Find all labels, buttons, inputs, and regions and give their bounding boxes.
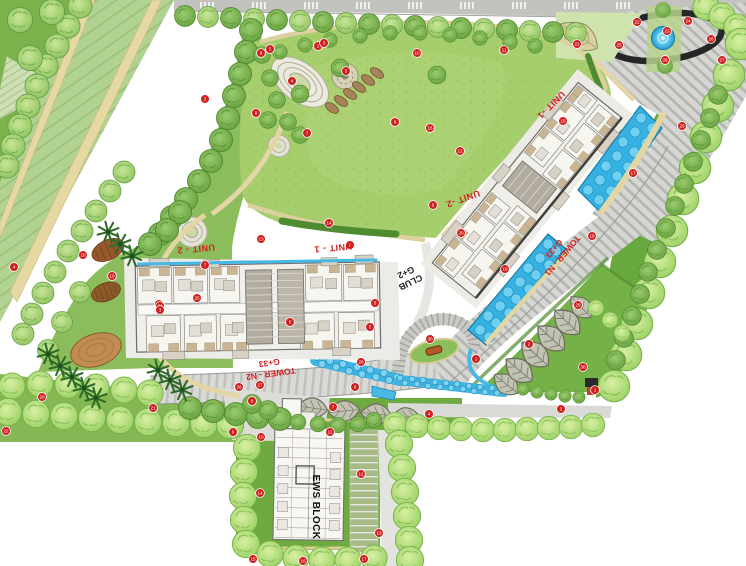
svg-text:28: 28 [358, 360, 364, 365]
svg-text:15: 15 [560, 119, 566, 124]
svg-text:15: 15 [250, 557, 256, 562]
svg-text:3: 3 [560, 407, 563, 412]
svg-text:19: 19 [109, 274, 115, 279]
svg-text:1: 1 [594, 388, 597, 393]
svg-text:4: 4 [13, 265, 16, 270]
svg-text:22: 22 [3, 429, 9, 434]
svg-text:2: 2 [528, 342, 531, 347]
svg-text:20: 20 [458, 231, 464, 236]
svg-text:4: 4 [428, 412, 431, 417]
svg-text:18: 18 [80, 253, 86, 258]
svg-text:12: 12 [457, 149, 463, 154]
svg-text:30: 30 [427, 337, 433, 342]
svg-text:9: 9 [432, 203, 435, 208]
svg-text:5: 5 [374, 301, 377, 306]
svg-text:17: 17 [361, 557, 367, 562]
svg-text:27: 27 [719, 58, 725, 63]
svg-text:23: 23 [664, 29, 670, 34]
svg-text:26: 26 [236, 385, 242, 390]
svg-text:6: 6 [394, 120, 397, 125]
svg-text:16: 16 [427, 126, 433, 131]
svg-text:21: 21 [574, 42, 580, 47]
svg-text:2: 2 [269, 47, 272, 52]
svg-text:21: 21 [150, 406, 156, 411]
svg-text:7: 7 [332, 405, 335, 410]
svg-text:2: 2 [204, 97, 207, 102]
svg-text:8: 8 [251, 399, 254, 404]
svg-text:29: 29 [575, 303, 581, 308]
svg-text:3: 3 [159, 308, 162, 313]
svg-text:13: 13 [258, 237, 264, 242]
svg-text:1: 1 [317, 44, 320, 49]
svg-text:9: 9 [232, 430, 235, 435]
svg-text:14: 14 [326, 221, 332, 226]
svg-text:19: 19 [502, 267, 508, 272]
svg-text:7: 7 [204, 263, 207, 268]
svg-text:4: 4 [291, 79, 294, 84]
svg-text:16: 16 [300, 559, 306, 564]
svg-text:7: 7 [306, 131, 309, 136]
svg-text:8: 8 [255, 111, 258, 116]
svg-text:EWS BLOCK: EWS BLOCK [310, 475, 321, 540]
svg-text:29: 29 [679, 124, 685, 129]
svg-text:18: 18 [589, 234, 595, 239]
svg-text:6: 6 [289, 320, 292, 325]
svg-text:26: 26 [708, 37, 714, 42]
svg-text:11: 11 [328, 430, 333, 435]
svg-text:10: 10 [414, 51, 420, 56]
svg-text:20: 20 [39, 395, 45, 400]
svg-text:30: 30 [580, 365, 586, 370]
svg-text:5: 5 [369, 325, 372, 330]
svg-text:17: 17 [630, 171, 636, 176]
svg-text:28: 28 [662, 58, 668, 63]
svg-text:22: 22 [634, 20, 640, 25]
svg-text:1: 1 [475, 357, 478, 362]
svg-text:6: 6 [354, 385, 357, 390]
svg-text:25: 25 [616, 43, 622, 48]
svg-text:13: 13 [376, 531, 382, 536]
svg-text:5: 5 [345, 69, 348, 74]
svg-text:11: 11 [502, 48, 507, 53]
svg-text:25: 25 [194, 296, 200, 301]
svg-text:24: 24 [685, 19, 691, 24]
svg-text:12: 12 [358, 472, 364, 477]
svg-text:14: 14 [257, 491, 263, 496]
svg-text:27: 27 [257, 383, 263, 388]
svg-text:3: 3 [323, 41, 326, 46]
svg-text:9: 9 [260, 51, 263, 56]
svg-text:10: 10 [258, 435, 264, 440]
